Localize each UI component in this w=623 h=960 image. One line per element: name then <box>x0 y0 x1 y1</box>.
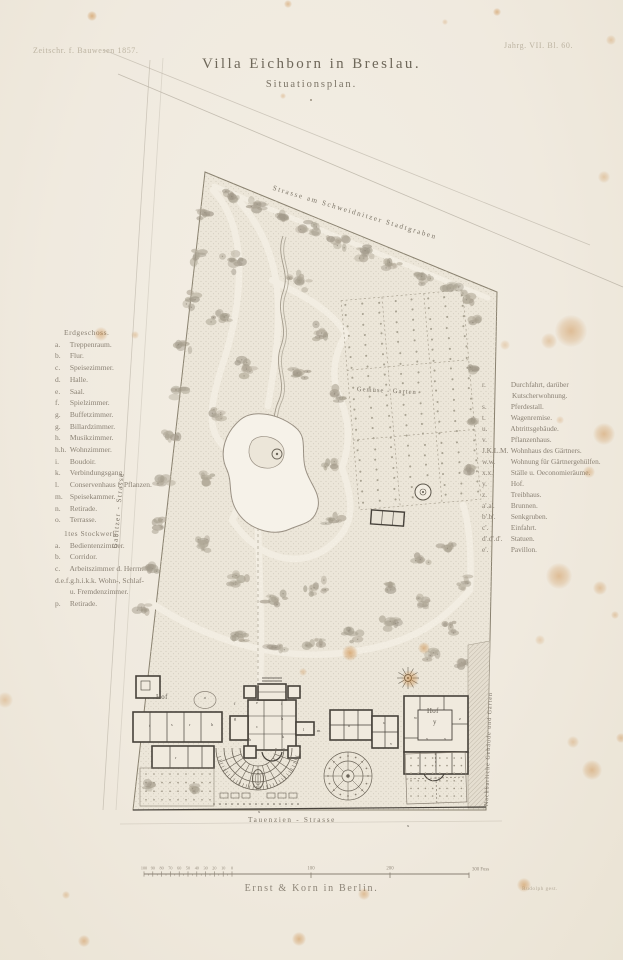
legend-first-floor-title: 1tes Stockwerk. <box>64 528 152 540</box>
legend-ground-floor-items: a. Treppenraum.b. Flur.c. Speisezimmer.d… <box>55 339 152 526</box>
workshop <box>152 746 214 768</box>
legend-site: r. Durchfahrt, darüber Kutscherwohnung.s… <box>497 379 615 555</box>
courtyard-key-right: y <box>433 719 437 726</box>
legend-first-floor-items: a. Bedientenzimmer.b. Corridor.c. Arbeit… <box>55 540 152 610</box>
svg-text:e: e <box>256 700 258 705</box>
engraver-imprint: Rudolph gest. <box>522 886 558 892</box>
svg-text:x: x <box>407 823 410 828</box>
plate-subtitle: Situationsplan. <box>0 79 623 90</box>
courtyard-label-left: Hof <box>156 694 168 701</box>
svg-text:70: 70 <box>168 866 172 871</box>
circular-parterre <box>324 752 372 800</box>
scanned-plate-page: { "plate": { "journal_ref": "Zeitschr. f… <box>0 0 623 960</box>
svg-text:40: 40 <box>195 866 199 871</box>
svg-text:300 Fuss: 300 Fuss <box>472 868 489 873</box>
title-ornament-dot <box>310 99 312 101</box>
issue-reference: Jahrg. VII. Bl. 60. <box>504 41 573 50</box>
svg-text:z: z <box>459 716 461 721</box>
svg-text:100: 100 <box>307 867 315 872</box>
svg-text:90: 90 <box>151 866 155 871</box>
courtyard-label-right: Hof <box>427 708 439 715</box>
svg-text:100: 100 <box>141 866 147 871</box>
svg-text:50: 50 <box>186 866 190 871</box>
svg-text:80: 80 <box>160 866 164 871</box>
street-label-bottom: Tauenzien - Strasse <box>248 816 336 824</box>
svg-text:200: 200 <box>386 867 394 872</box>
svg-text:60: 60 <box>177 866 181 871</box>
legend-site-items: r. Durchfahrt, darüber Kutscherwohnung.s… <box>497 379 615 555</box>
svg-text:30: 30 <box>204 866 208 871</box>
stable-row <box>133 712 222 742</box>
plate-title: Villa Eichborn in Breslau. <box>0 56 623 73</box>
greenhouse <box>371 510 405 526</box>
svg-text:10: 10 <box>221 866 225 871</box>
legend-ground-floor-title: Erdgeschoss. <box>64 327 152 339</box>
scale-bar: 1009080706050403020100100200300 Fuss <box>141 866 489 879</box>
journal-reference: Zeitschr. f. Bauwesen 1857. <box>33 46 139 55</box>
svg-text:c: c <box>256 724 258 729</box>
svg-text:b: b <box>249 737 251 742</box>
svg-text:20: 20 <box>212 866 216 871</box>
legend-ground-floor: Erdgeschoss. a. Treppenraum.b. Flur.c. S… <box>55 327 152 610</box>
svg-text:0: 0 <box>231 866 233 871</box>
svg-text:o: o <box>204 695 206 700</box>
